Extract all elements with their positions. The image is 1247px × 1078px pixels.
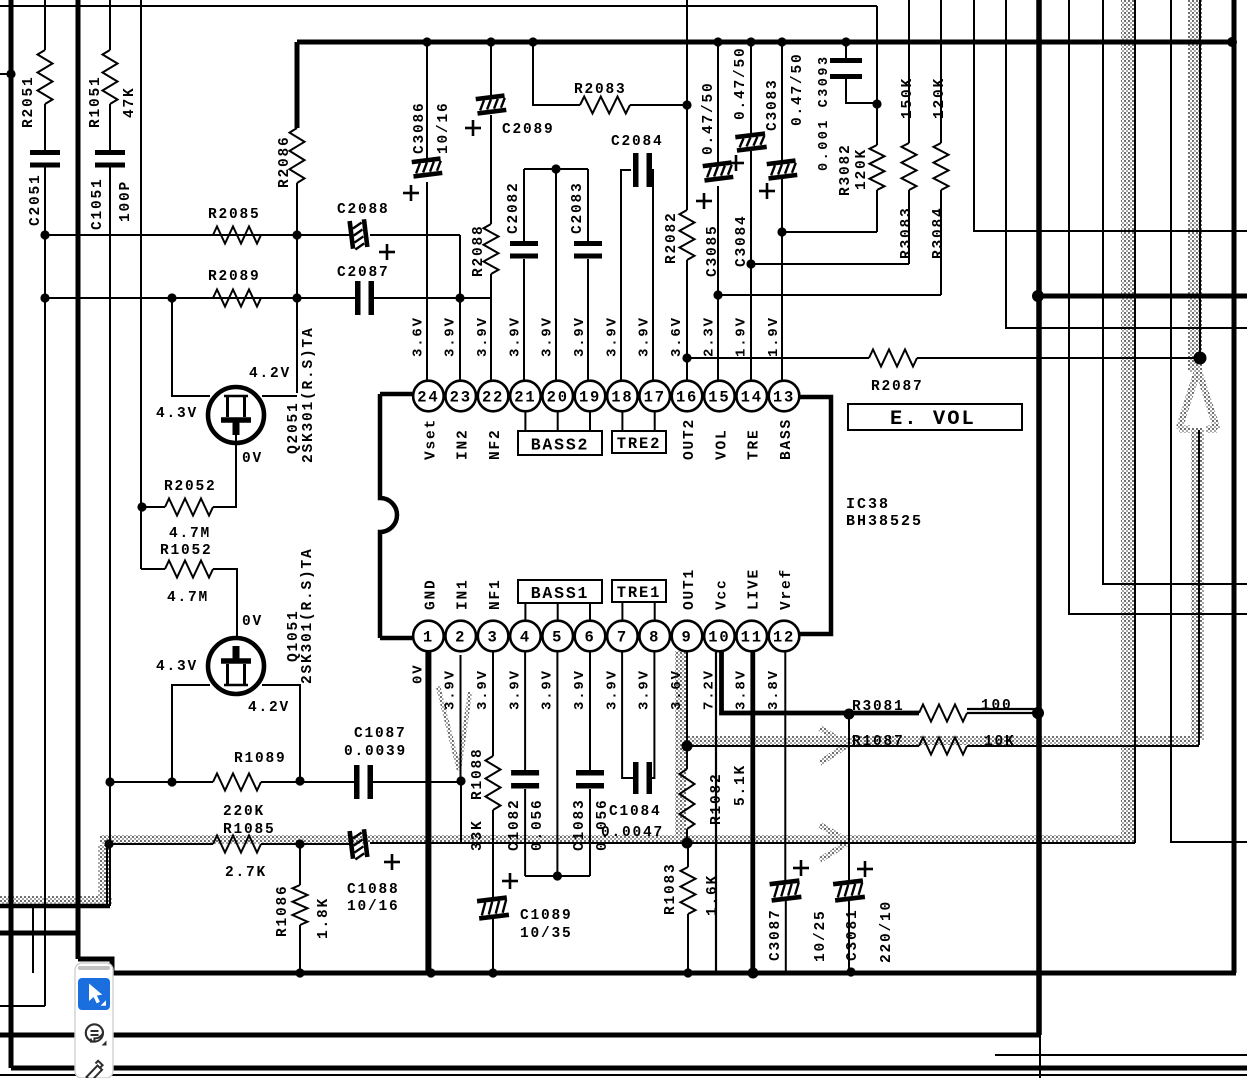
svg-text:2SK301(R.S)TA: 2SK301(R.S)TA <box>301 326 317 463</box>
svg-text:Q2051: Q2051 <box>286 401 302 454</box>
svg-text:100: 100 <box>981 698 1013 714</box>
svg-text:18: 18 <box>611 389 633 407</box>
svg-text:C1089: C1089 <box>520 908 573 924</box>
svg-text:OUT1: OUT1 <box>682 568 698 610</box>
svg-text:R3084: R3084 <box>931 206 947 259</box>
svg-text:12: 12 <box>773 629 795 647</box>
svg-text:3.6V: 3.6V <box>410 316 426 357</box>
svg-text:4.2V: 4.2V <box>248 700 290 716</box>
svg-text:16: 16 <box>676 389 698 407</box>
svg-text:R1085: R1085 <box>223 822 276 838</box>
svg-text:R2089: R2089 <box>208 269 261 285</box>
svg-text:4.3V: 4.3V <box>156 659 198 675</box>
svg-text:1.9V: 1.9V <box>766 316 782 357</box>
svg-text:C1087: C1087 <box>354 726 407 742</box>
svg-text:8: 8 <box>649 629 660 647</box>
svg-text:R1083: R1083 <box>663 862 679 915</box>
svg-text:2.7K: 2.7K <box>225 865 267 881</box>
svg-text:10K: 10K <box>984 734 1016 750</box>
svg-text:3.9V: 3.9V <box>475 316 491 357</box>
svg-text:C3083: C3083 <box>765 78 781 131</box>
svg-text:BASS2: BASS2 <box>531 436 590 455</box>
svg-text:R1051: R1051 <box>88 75 104 128</box>
svg-text:2.3V: 2.3V <box>701 316 717 357</box>
svg-text:2SK301(R.S)TA: 2SK301(R.S)TA <box>300 547 316 684</box>
svg-text:C1082: C1082 <box>507 798 523 851</box>
svg-text:3.9V: 3.9V <box>507 316 523 357</box>
svg-text:4.7M: 4.7M <box>169 526 211 542</box>
svg-text:21: 21 <box>514 389 536 407</box>
svg-text:R2085: R2085 <box>208 207 261 223</box>
svg-text:3.9V: 3.9V <box>572 669 588 710</box>
svg-text:3: 3 <box>488 629 499 647</box>
svg-text:R1087: R1087 <box>852 734 905 750</box>
svg-text:4.3V: 4.3V <box>156 406 198 422</box>
svg-text:OUT2: OUT2 <box>682 418 698 460</box>
svg-text:C3085: C3085 <box>705 224 721 277</box>
svg-text:10/25: 10/25 <box>813 909 829 962</box>
svg-text:C3081: C3081 <box>845 908 861 961</box>
svg-text:IN2: IN2 <box>456 428 472 460</box>
svg-text:NF2: NF2 <box>488 428 504 460</box>
svg-text:7.2V: 7.2V <box>701 669 717 710</box>
svg-text:C2088: C2088 <box>337 202 390 218</box>
svg-text:220K: 220K <box>223 804 265 820</box>
svg-text:Vcc: Vcc <box>714 578 730 610</box>
svg-text:15: 15 <box>708 389 730 407</box>
svg-text:C3087: C3087 <box>768 908 784 961</box>
svg-text:3.9V: 3.9V <box>572 316 588 357</box>
svg-text:Vset: Vset <box>423 418 439 460</box>
svg-text:4.7M: 4.7M <box>167 590 209 606</box>
svg-text:11: 11 <box>741 629 763 647</box>
svg-text:4.2V: 4.2V <box>249 366 291 382</box>
svg-text:C2051: C2051 <box>28 173 44 226</box>
svg-text:5.1K: 5.1K <box>733 764 749 806</box>
svg-text:220/10: 220/10 <box>879 900 895 963</box>
svg-text:TRE2: TRE2 <box>617 435 661 453</box>
svg-text:33K: 33K <box>470 819 486 851</box>
svg-text:1: 1 <box>423 629 434 647</box>
svg-text:IN1: IN1 <box>456 578 472 610</box>
svg-text:10: 10 <box>708 629 730 647</box>
svg-text:19: 19 <box>579 389 601 407</box>
svg-text:120K: 120K <box>854 148 870 190</box>
svg-text:3.8V: 3.8V <box>734 669 750 710</box>
svg-text:5: 5 <box>552 629 563 647</box>
svg-text:10/35: 10/35 <box>520 926 573 942</box>
svg-text:GND: GND <box>423 578 439 610</box>
svg-text:3.9V: 3.9V <box>540 316 556 357</box>
svg-text:C2082: C2082 <box>506 181 522 234</box>
svg-text:3.9V: 3.9V <box>637 316 653 357</box>
svg-text:17: 17 <box>644 389 666 407</box>
svg-text:R2087: R2087 <box>871 379 924 395</box>
svg-text:3.9V: 3.9V <box>540 669 556 710</box>
svg-text:3.8V: 3.8V <box>766 669 782 710</box>
svg-text:120K: 120K <box>932 77 948 119</box>
svg-text:100P: 100P <box>118 180 134 222</box>
svg-text:47K: 47K <box>122 86 138 118</box>
svg-text:R2052: R2052 <box>164 479 217 495</box>
svg-text:TRE: TRE <box>747 428 763 460</box>
svg-text:150K: 150K <box>900 77 916 119</box>
svg-text:C1083: C1083 <box>572 798 588 851</box>
svg-text:1.8K: 1.8K <box>316 897 332 939</box>
svg-text:0.001 C3093: 0.001 C3093 <box>817 54 832 171</box>
svg-text:0.47/50: 0.47/50 <box>701 81 717 155</box>
svg-text:10/16: 10/16 <box>436 101 452 154</box>
svg-text:R2086: R2086 <box>277 135 293 188</box>
svg-text:0V: 0V <box>242 614 263 630</box>
svg-text:3.9V: 3.9V <box>604 316 620 357</box>
svg-text:IC38: IC38 <box>846 496 890 513</box>
svg-text:R2083: R2083 <box>574 82 627 98</box>
svg-text:R1089: R1089 <box>234 751 287 767</box>
svg-text:E. VOL: E. VOL <box>890 408 976 431</box>
svg-text:R3082: R3082 <box>838 143 854 196</box>
svg-text:22: 22 <box>482 389 504 407</box>
svg-text:10/16: 10/16 <box>347 899 400 915</box>
svg-text:3.9V: 3.9V <box>507 669 523 710</box>
svg-text:24: 24 <box>417 389 439 407</box>
svg-text:2: 2 <box>455 629 466 647</box>
svg-text:3.6V: 3.6V <box>669 669 685 710</box>
svg-text:VOL: VOL <box>714 428 730 460</box>
svg-text:3.9V: 3.9V <box>604 669 620 710</box>
svg-text:7: 7 <box>617 629 628 647</box>
svg-text:R1052: R1052 <box>160 543 213 559</box>
svg-text:1.9V: 1.9V <box>734 316 750 357</box>
svg-text:BH38525: BH38525 <box>846 513 923 530</box>
svg-text:0.47/50: 0.47/50 <box>790 52 806 126</box>
svg-text:13: 13 <box>773 389 795 407</box>
svg-text:BASS: BASS <box>779 418 795 460</box>
svg-text:BASS1: BASS1 <box>531 584 590 603</box>
svg-text:NF1: NF1 <box>488 578 504 610</box>
svg-text:14: 14 <box>741 389 763 407</box>
svg-text:3.9V: 3.9V <box>443 316 459 357</box>
svg-text:Vref: Vref <box>779 568 795 610</box>
svg-text:R2082: R2082 <box>664 211 680 264</box>
svg-text:3.9V: 3.9V <box>637 669 653 710</box>
svg-text:R1088: R1088 <box>470 747 486 800</box>
svg-text:R1082: R1082 <box>709 772 725 825</box>
svg-text:20: 20 <box>547 389 569 407</box>
svg-text:C3084: C3084 <box>734 214 750 267</box>
svg-text:3.9V: 3.9V <box>475 669 491 710</box>
svg-text:R2088: R2088 <box>471 224 487 277</box>
svg-text:C3086: C3086 <box>412 101 428 154</box>
svg-text:1.6K: 1.6K <box>705 874 721 916</box>
svg-text:LIVE: LIVE <box>747 568 763 610</box>
svg-text:C1051: C1051 <box>90 177 106 230</box>
svg-text:R3083: R3083 <box>899 206 915 259</box>
svg-text:C2083: C2083 <box>570 181 586 234</box>
svg-text:R2051: R2051 <box>21 75 37 128</box>
svg-text:C2089: C2089 <box>502 122 555 138</box>
svg-text:0.056: 0.056 <box>530 798 546 851</box>
svg-text:0.0039: 0.0039 <box>344 744 407 760</box>
svg-text:R1086: R1086 <box>275 884 291 937</box>
svg-text:6: 6 <box>584 629 595 647</box>
svg-text:R3081: R3081 <box>852 699 905 715</box>
svg-text:0.47/50: 0.47/50 <box>733 46 749 120</box>
svg-text:C1084: C1084 <box>609 804 662 820</box>
svg-text:TRE1: TRE1 <box>617 584 661 602</box>
svg-text:3.6V: 3.6V <box>669 316 685 357</box>
svg-text:9: 9 <box>681 629 692 647</box>
svg-text:3.9V: 3.9V <box>443 669 459 710</box>
svg-text:0.0047: 0.0047 <box>601 825 664 841</box>
svg-text:0V: 0V <box>410 664 426 684</box>
svg-text:C1088: C1088 <box>347 882 400 898</box>
svg-text:4: 4 <box>520 629 531 647</box>
svg-text:C2084: C2084 <box>611 134 664 150</box>
svg-text:0V: 0V <box>242 451 263 467</box>
svg-text:23: 23 <box>450 389 472 407</box>
svg-text:C2087: C2087 <box>337 265 390 281</box>
